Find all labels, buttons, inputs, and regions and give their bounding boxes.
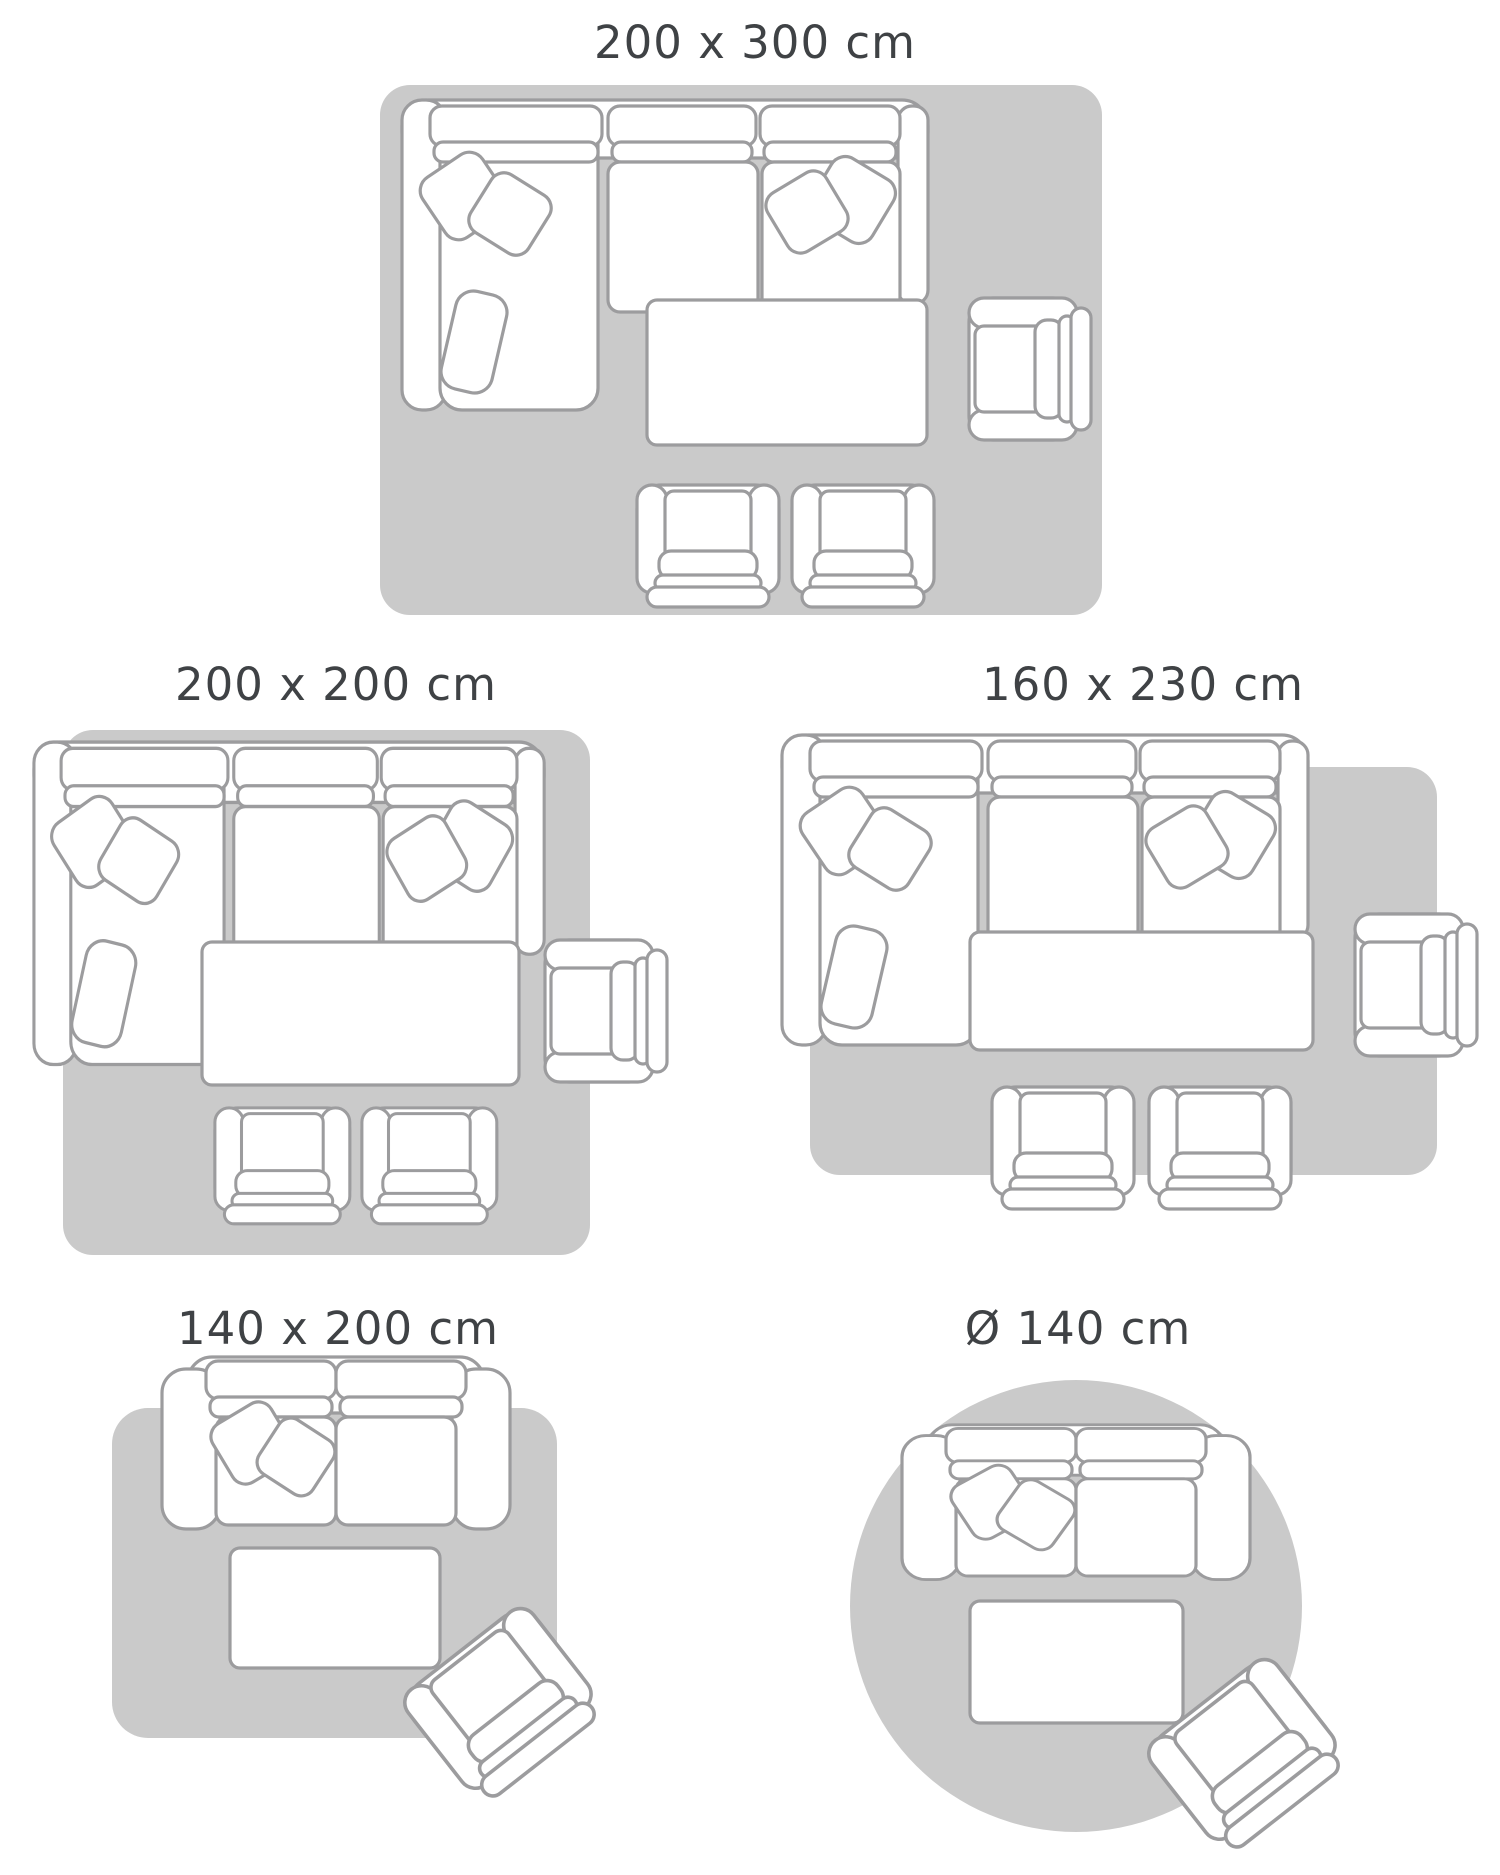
rug-size-guide: 200 x 300 cm 200 x 200 cm 160 x 230 cm 1… — [0, 0, 1500, 1875]
side-armchair — [1355, 914, 1477, 1056]
side-armchair — [969, 298, 1091, 440]
layout-200x300 — [380, 85, 1102, 615]
armchair — [1149, 1087, 1291, 1209]
coffee-table — [647, 300, 927, 445]
side-armchair — [545, 940, 667, 1082]
two-seater-sofa — [162, 1357, 510, 1529]
armchair — [792, 485, 934, 607]
coffee-table — [970, 932, 1313, 1050]
coffee-table — [970, 1601, 1183, 1723]
coffee-table — [230, 1548, 440, 1668]
armchair — [637, 485, 779, 607]
armchair — [215, 1108, 350, 1224]
two-seater-sofa — [902, 1425, 1250, 1580]
layout-200x200 — [34, 730, 667, 1255]
armchair — [992, 1087, 1134, 1209]
layout-d140 — [850, 1380, 1351, 1858]
layout-160x230 — [782, 735, 1477, 1209]
rug-size-guide-illustration — [0, 0, 1500, 1875]
armchair — [362, 1108, 497, 1224]
layout-140x200 — [112, 1357, 607, 1807]
coffee-table — [202, 942, 519, 1085]
